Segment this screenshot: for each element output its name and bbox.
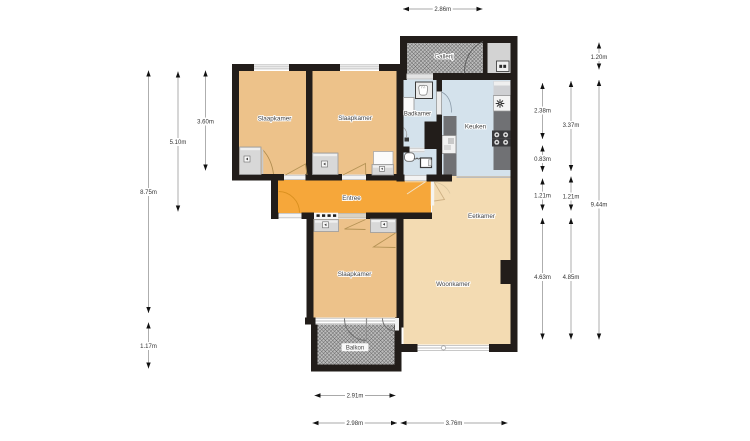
svg-text:3.60m: 3.60m [197,120,214,126]
svg-text:2.98m: 2.98m [346,421,363,427]
svg-text:1.21m: 1.21m [563,195,580,201]
svg-text:5.10m: 5.10m [170,140,187,146]
svg-text:Slaapkamer: Slaapkamer [258,116,292,123]
svg-text:Badkamer: Badkamer [404,112,431,118]
svg-text:Entree: Entree [342,195,361,202]
svg-text:Slaapkamer: Slaapkamer [338,271,372,278]
svg-text:1.17m: 1.17m [140,344,157,350]
svg-text:9.44m: 9.44m [591,203,608,209]
svg-text:2.86m: 2.86m [434,7,451,13]
svg-text:Keuken: Keuken [465,124,487,131]
svg-text:Balkon: Balkon [346,345,364,351]
svg-text:Slaapkamer: Slaapkamer [338,115,372,122]
svg-text:1.20m: 1.20m [591,55,608,61]
svg-text:2.38m: 2.38m [534,109,551,115]
svg-text:0.83m: 0.83m [534,157,551,163]
svg-text:3.37m: 3.37m [563,123,580,129]
svg-text:1.21m: 1.21m [534,194,551,200]
svg-text:3.76m: 3.76m [446,421,463,427]
svg-text:Woonkamer: Woonkamer [436,281,470,288]
svg-text:4.85m: 4.85m [563,275,580,281]
svg-text:Eetkamer: Eetkamer [468,213,495,220]
svg-text:Gallerij: Gallerij [434,54,453,61]
svg-text:8.75m: 8.75m [140,190,157,196]
svg-text:4.63m: 4.63m [534,275,551,281]
svg-text:2.91m: 2.91m [347,394,364,400]
